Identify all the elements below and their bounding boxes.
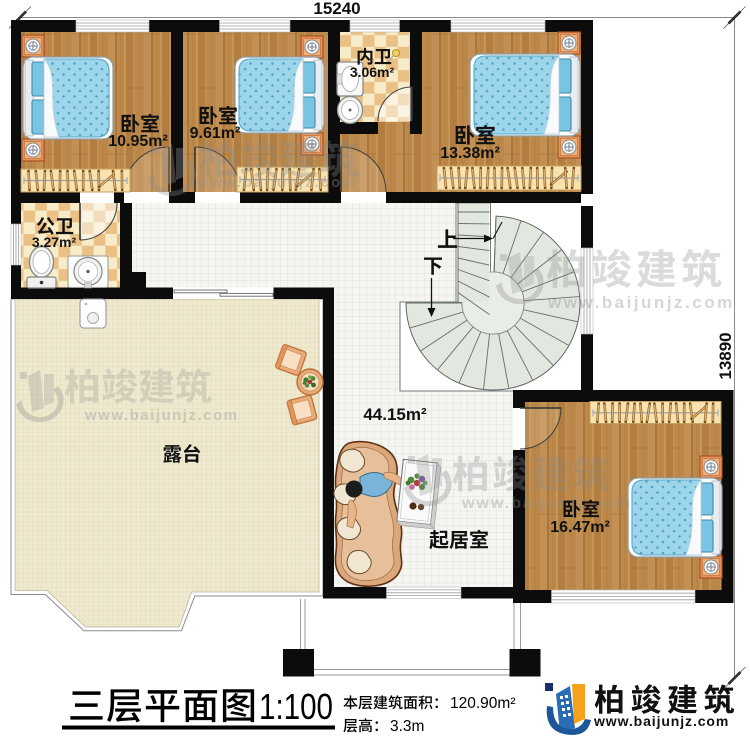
svg-text:15240: 15240 [313, 0, 360, 18]
svg-text:3.06m²: 3.06m² [350, 64, 395, 80]
svg-text:www.baijunjz.com: www.baijunjz.com [196, 175, 357, 191]
svg-text:9.61m²: 9.61m² [190, 125, 241, 142]
svg-text:www.baijunjz.com: www.baijunjz.com [461, 495, 632, 512]
svg-text:13.38m²: 13.38m² [440, 145, 500, 162]
svg-text:10.95m²: 10.95m² [108, 133, 168, 150]
svg-text:www.baijunjz.com: www.baijunjz.com [84, 407, 238, 424]
svg-text:16.47m²: 16.47m² [550, 519, 610, 536]
svg-text:120.90m²: 120.90m² [450, 695, 515, 712]
svg-text:3.3m: 3.3m [390, 718, 424, 735]
svg-text:www.baijunjz.com: www.baijunjz.com [593, 713, 729, 729]
svg-text:44.15m²: 44.15m² [363, 405, 427, 424]
svg-text:13890: 13890 [716, 332, 735, 379]
svg-text:1:100: 1:100 [259, 686, 333, 727]
svg-text:www.baijunjz.com: www.baijunjz.com [547, 293, 735, 312]
svg-text:3.27m²: 3.27m² [32, 234, 77, 250]
